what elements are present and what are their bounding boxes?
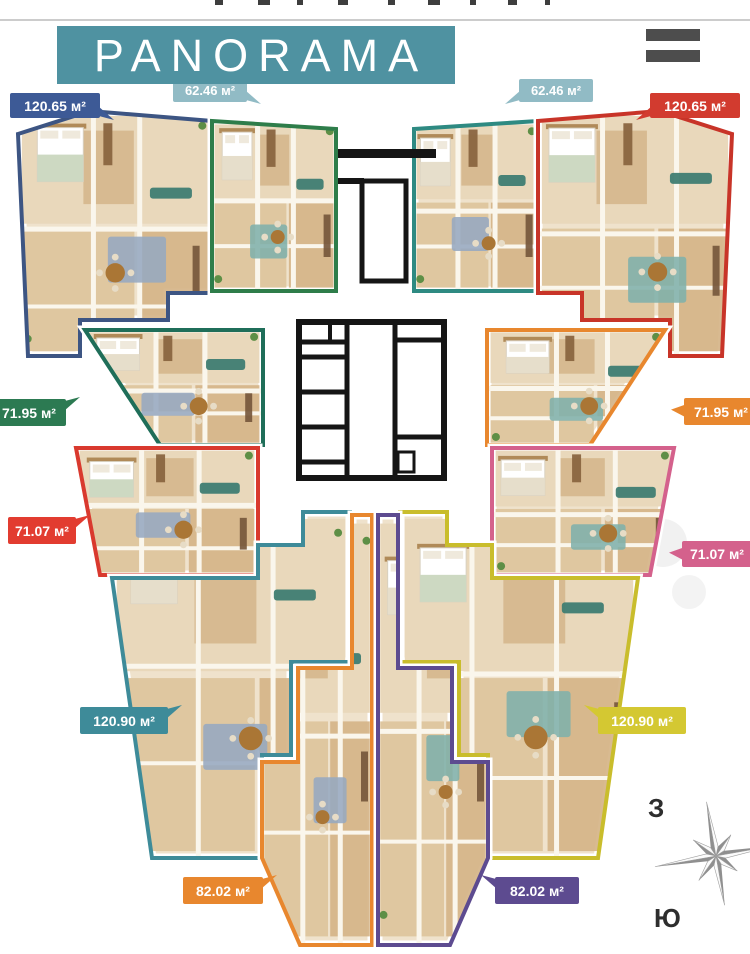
area-label-apartment-71-95-left[interactable]: 71.95 м² <box>0 399 66 426</box>
apartment-120-65-left[interactable] <box>18 111 212 356</box>
area-value: 71.07 м² <box>15 523 69 539</box>
brand-banner: PANORAMA <box>57 26 455 84</box>
hamburger-icon <box>646 50 700 62</box>
area-value: 120.65 м² <box>24 98 86 114</box>
brand-title: PANORAMA <box>84 33 428 78</box>
apartment-71-07-right[interactable] <box>492 448 674 575</box>
area-value: 62.46 м² <box>531 83 581 98</box>
area-label-apartment-71-07-left[interactable]: 71.07 м² <box>8 517 76 544</box>
area-value: 120.90 м² <box>93 713 155 729</box>
area-value: 71.95 м² <box>694 404 748 420</box>
area-label-apartment-120-65-right[interactable]: 120.65 м² <box>650 93 740 118</box>
compass-west-label: З <box>648 793 664 823</box>
apartment-120-65-right[interactable] <box>538 111 732 356</box>
area-label-apartment-82-02-right[interactable]: 82.02 м² <box>495 877 579 904</box>
area-label-apartment-120-90-left[interactable]: 120.90 м² <box>80 707 168 734</box>
apartment-71-07-left[interactable] <box>76 448 258 575</box>
area-label-apartment-71-07-right[interactable]: 71.07 м² <box>682 541 750 567</box>
top-divider-line <box>0 19 750 21</box>
apartment-71-95-left[interactable] <box>85 330 263 445</box>
top-edge-text-fragments <box>215 0 550 5</box>
area-label-apartment-82-02-left[interactable]: 82.02 м² <box>183 877 263 904</box>
area-value: 82.02 м² <box>196 883 250 899</box>
area-label-apartment-120-65-left[interactable]: 120.65 м² <box>10 93 100 118</box>
area-value: 71.95 м² <box>2 405 56 421</box>
apartment-71-95-right[interactable] <box>487 330 665 445</box>
floorplan-drawing: З Ю <box>0 0 750 954</box>
area-label-apartment-120-90-right[interactable]: 120.90 м² <box>598 707 686 734</box>
area-label-apartment-62-46-right[interactable]: 62.46 м² <box>519 79 593 102</box>
area-value: 82.02 м² <box>510 883 564 899</box>
area-value: 120.90 м² <box>611 713 673 729</box>
area-label-apartment-71-95-right[interactable]: 71.95 м² <box>684 398 750 425</box>
hamburger-icon <box>646 29 700 41</box>
area-value: 71.07 м² <box>690 546 744 562</box>
menu-button[interactable] <box>646 29 700 63</box>
compass-south-label: Ю <box>654 903 681 933</box>
apartment-62-46-right[interactable] <box>414 121 538 291</box>
compass-star <box>655 802 750 905</box>
apartment-62-46-left[interactable] <box>212 121 336 291</box>
area-value: 62.46 м² <box>185 83 235 98</box>
area-value: 120.65 м² <box>664 98 726 114</box>
floorplan-page: З Ю 120.65 м² 62.46 м² 62.46 м² 120.65 м… <box>0 0 750 954</box>
